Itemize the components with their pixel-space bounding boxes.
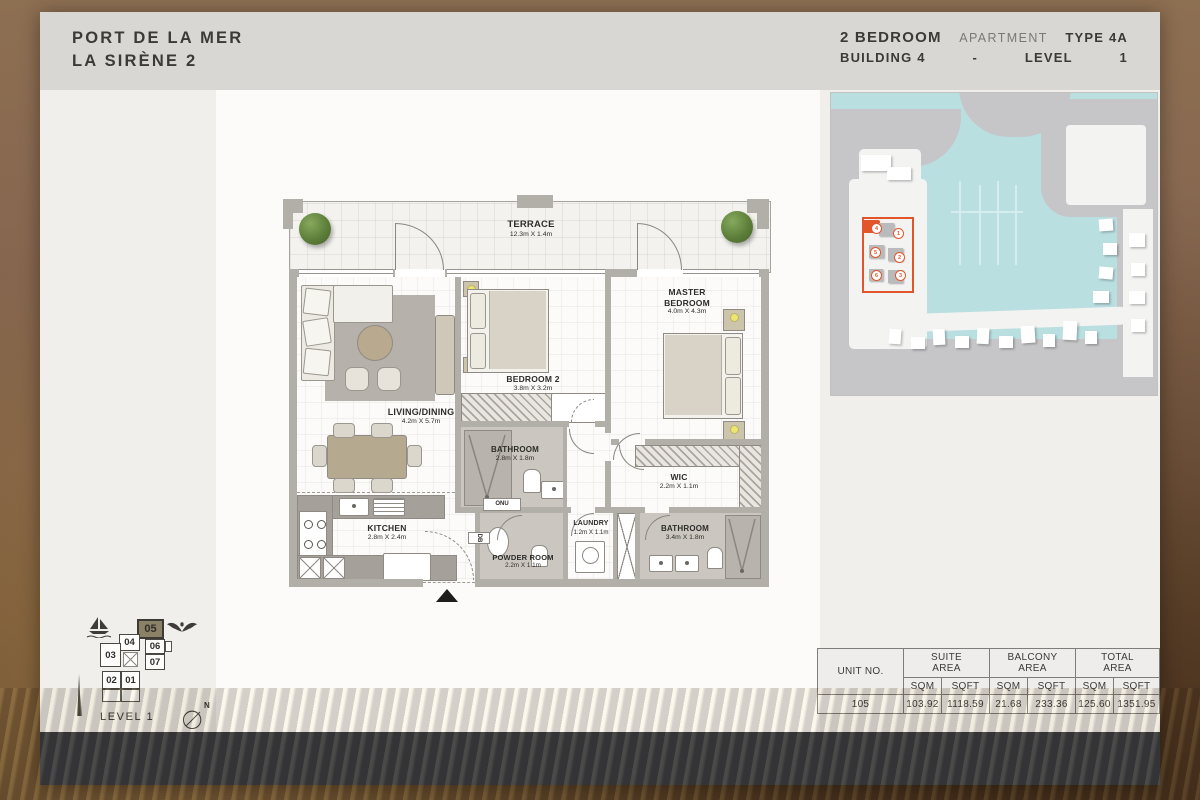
map-building-number-2: 2	[894, 252, 905, 263]
balcony-area-header: BALCONY AREA	[990, 649, 1076, 678]
pillow	[725, 377, 741, 415]
pouf	[345, 367, 369, 391]
door-opening	[395, 269, 445, 277]
wall-segment	[475, 579, 761, 587]
unit-box-06: 06	[145, 639, 165, 654]
marina-dock	[1015, 185, 1017, 265]
wall-segment	[605, 277, 611, 433]
site-map: 4 1 5 2 6 3	[830, 92, 1158, 396]
door-opening	[637, 269, 683, 277]
sofa-cushion	[303, 288, 332, 317]
sofa-seat	[333, 285, 393, 323]
window-segment	[447, 269, 605, 277]
dining-chair	[407, 445, 422, 467]
map-land	[830, 349, 949, 396]
marina-dock	[997, 181, 999, 265]
map-building	[1131, 319, 1145, 332]
map-building	[1129, 233, 1145, 247]
sqft-header: SQFT	[942, 678, 990, 695]
washing-machine	[575, 541, 605, 573]
sqft-header: SQFT	[1114, 678, 1160, 695]
total-sqm-value: 125.60	[1076, 695, 1114, 714]
sqm-header: SQM	[1076, 678, 1114, 695]
terrace-plant-icon	[721, 211, 753, 243]
wall-segment	[595, 421, 605, 427]
pouf	[377, 367, 401, 391]
wic-wardrobe	[739, 445, 763, 513]
unit-box-03: 03	[100, 643, 121, 667]
wall-segment	[455, 277, 461, 513]
level-caption: LEVEL 1	[100, 711, 154, 723]
sofa-cushion	[303, 348, 332, 377]
page: PORT DE LA MER LA SIRÈNE 2 2 BEDROOM APA…	[0, 0, 1200, 800]
unit-box-07: 07	[145, 654, 165, 670]
room-label-bedroom2: BEDROOM 23.8m X 3.2m	[506, 374, 559, 393]
total-area-header: TOTAL AREA	[1076, 649, 1160, 678]
shower-glass-icon	[465, 431, 509, 503]
map-building	[911, 337, 925, 349]
map-building	[1093, 291, 1109, 303]
room-label-master-bathroom: BATHROOM3.4m X 1.8m	[661, 524, 709, 542]
map-building	[933, 329, 946, 346]
onu-label: ONU	[495, 501, 508, 507]
pillow	[470, 333, 486, 369]
compass-icon	[180, 706, 206, 732]
onu-closet: ONU	[483, 498, 521, 511]
project-title-line2: LA SIRÈNE 2	[72, 50, 243, 73]
sofa-cushion	[302, 317, 332, 347]
level-label: LEVEL	[1025, 50, 1073, 65]
toilet	[523, 469, 541, 493]
balcony-sqft-value: 233.36	[1028, 695, 1076, 714]
drainboard	[373, 498, 405, 516]
db-label: DB	[476, 534, 482, 543]
pillow	[470, 293, 486, 329]
wall-segment	[563, 427, 567, 507]
terrace-plant-icon	[299, 213, 331, 245]
balcony-sqm-value: 21.68	[990, 695, 1028, 714]
map-building-number-4: 4	[871, 223, 882, 234]
floor-plan: ONU DB	[283, 193, 777, 617]
entry-arrow-icon	[436, 589, 458, 602]
project-title: PORT DE LA MER LA SIRÈNE 2	[72, 27, 243, 73]
map-building	[1129, 291, 1145, 304]
map-building-number-3: 3	[895, 270, 906, 281]
marina-dock	[959, 181, 961, 265]
map-building	[1085, 331, 1097, 344]
unit-box-02: 02	[102, 671, 121, 689]
unit-no-header: UNIT NO.	[818, 649, 904, 695]
eagle-emblem-icon	[166, 620, 198, 634]
map-building	[1103, 243, 1117, 255]
window-segment	[299, 269, 393, 277]
map-building	[1131, 263, 1145, 276]
nightstand-lamp	[723, 309, 745, 331]
tv-console	[435, 315, 455, 395]
bedroom-count: 2 BEDROOM	[840, 29, 942, 46]
map-building	[1063, 321, 1078, 341]
map-building	[1099, 219, 1114, 232]
apartment-type: TYPE 4A	[1065, 30, 1128, 45]
sqm-header: SQM	[904, 678, 942, 695]
kitchen-sink	[339, 498, 369, 516]
wall-segment	[645, 439, 761, 445]
suite-sqm-value: 103.92	[904, 695, 942, 714]
dining-chair	[333, 423, 355, 438]
map-building-number-5: 5	[870, 247, 881, 258]
wall-segment	[289, 269, 297, 587]
linen-closet	[617, 513, 637, 581]
shower-glass-icon	[726, 516, 758, 576]
wall-segment	[563, 513, 568, 579]
shower	[725, 515, 761, 579]
tower-icon	[74, 674, 85, 716]
room-label-wic: WIC2.2m X 1.1m	[660, 472, 699, 491]
map-building	[977, 328, 990, 345]
suite-sqft-value: 1118.59	[942, 695, 990, 714]
wall-segment	[283, 199, 293, 229]
shower	[464, 430, 512, 506]
dining-table	[327, 435, 407, 479]
unit-box-small	[165, 641, 172, 652]
master-bed-blanket	[665, 335, 722, 415]
bed2-blanket	[489, 291, 546, 369]
unit-box-04: 04	[119, 634, 140, 651]
room-label-master-bedroom: MASTER BEDROOM4.0m X 4.3m	[654, 287, 720, 317]
area-table: UNIT NO. SUITE AREA BALCONY AREA TOTAL A…	[817, 648, 1160, 714]
bathroom-sink	[649, 555, 673, 572]
map-building	[1043, 334, 1055, 347]
door-leaf	[395, 223, 396, 270]
wall-segment	[289, 579, 423, 587]
wall-segment	[613, 513, 617, 579]
map-building	[1099, 266, 1114, 279]
project-title-line1: PORT DE LA MER	[72, 27, 243, 50]
marina-dock	[951, 211, 1023, 213]
room-label-powder-room: POWDER ROOM2.2m X 1.1m	[492, 553, 553, 570]
dining-chair	[312, 445, 327, 467]
bedroom2-wardrobe	[461, 393, 553, 423]
map-building	[955, 336, 969, 348]
coffee-table	[357, 325, 393, 361]
level-value: 1	[1120, 50, 1128, 65]
wall-segment	[635, 513, 640, 579]
table-row: 105 103.92 1118.59 21.68 233.36 125.60 1…	[818, 695, 1160, 714]
level-key-diagram: 05 04 06 03 07 02 01 LEVEL 1 N	[70, 612, 230, 740]
base-cabinet	[299, 557, 321, 579]
room-label-terrace: TERRACE12.3m X 1.4m	[507, 219, 554, 239]
db-panel: DB	[468, 532, 490, 544]
map-building	[1020, 326, 1035, 344]
elevator-icon	[123, 652, 138, 667]
separator-dash: -	[972, 50, 978, 65]
window-segment	[683, 269, 759, 277]
unit-box-small	[102, 689, 121, 702]
map-building	[999, 336, 1013, 348]
dining-chair	[333, 478, 355, 493]
ceiling-break-line	[297, 492, 455, 493]
total-sqft-value: 1351.95	[1114, 695, 1160, 714]
bathroom-sink	[675, 555, 699, 572]
room-label-laundry: LAUNDRY1.2m X 1.1m	[573, 520, 608, 537]
sqm-header: SQM	[990, 678, 1028, 695]
unit-box-01: 01	[121, 671, 140, 689]
room-label-bathroom2: BATHROOM2.8m X 1.8m	[491, 445, 539, 463]
apartment-label: APARTMENT	[959, 31, 1048, 45]
dining-chair	[371, 478, 393, 493]
unit-no-value: 105	[818, 695, 904, 714]
unit-box-05: 05	[137, 619, 164, 639]
map-building	[888, 329, 901, 345]
wall-segment	[461, 421, 569, 427]
base-cabinet	[323, 557, 345, 579]
unit-header: 2 BEDROOM APARTMENT TYPE 4A BUILDING 4 -…	[840, 29, 1128, 71]
toilet	[707, 547, 723, 569]
marina-dock	[979, 185, 981, 265]
wall-segment	[517, 195, 553, 208]
unit-box-small	[121, 689, 140, 702]
room-label-living-dining: LIVING/DINING4.2m X 5.7m	[388, 407, 455, 427]
entry-threshold	[423, 582, 475, 583]
wall-segment	[605, 461, 611, 513]
wall-segment	[761, 269, 769, 587]
wall-segment	[757, 199, 769, 229]
wall-segment	[669, 507, 761, 513]
suite-area-header: SUITE AREA	[904, 649, 990, 678]
wall-segment	[475, 513, 480, 579]
door-leaf	[637, 223, 638, 270]
boat-icon	[86, 616, 112, 638]
map-plot	[1066, 125, 1146, 205]
building-label: BUILDING 4	[840, 50, 926, 65]
map-building	[887, 167, 911, 180]
room-label-kitchen: KITCHEN2.8m X 2.4m	[367, 523, 406, 542]
stove	[299, 511, 327, 557]
pillow	[725, 337, 741, 375]
map-building-number-1: 1	[893, 228, 904, 239]
north-label: N	[204, 701, 210, 710]
fridge	[383, 553, 431, 581]
sqft-header: SQFT	[1028, 678, 1076, 695]
map-building-number-6: 6	[871, 270, 882, 281]
wic-wardrobe	[635, 445, 741, 467]
map-land	[830, 211, 851, 357]
